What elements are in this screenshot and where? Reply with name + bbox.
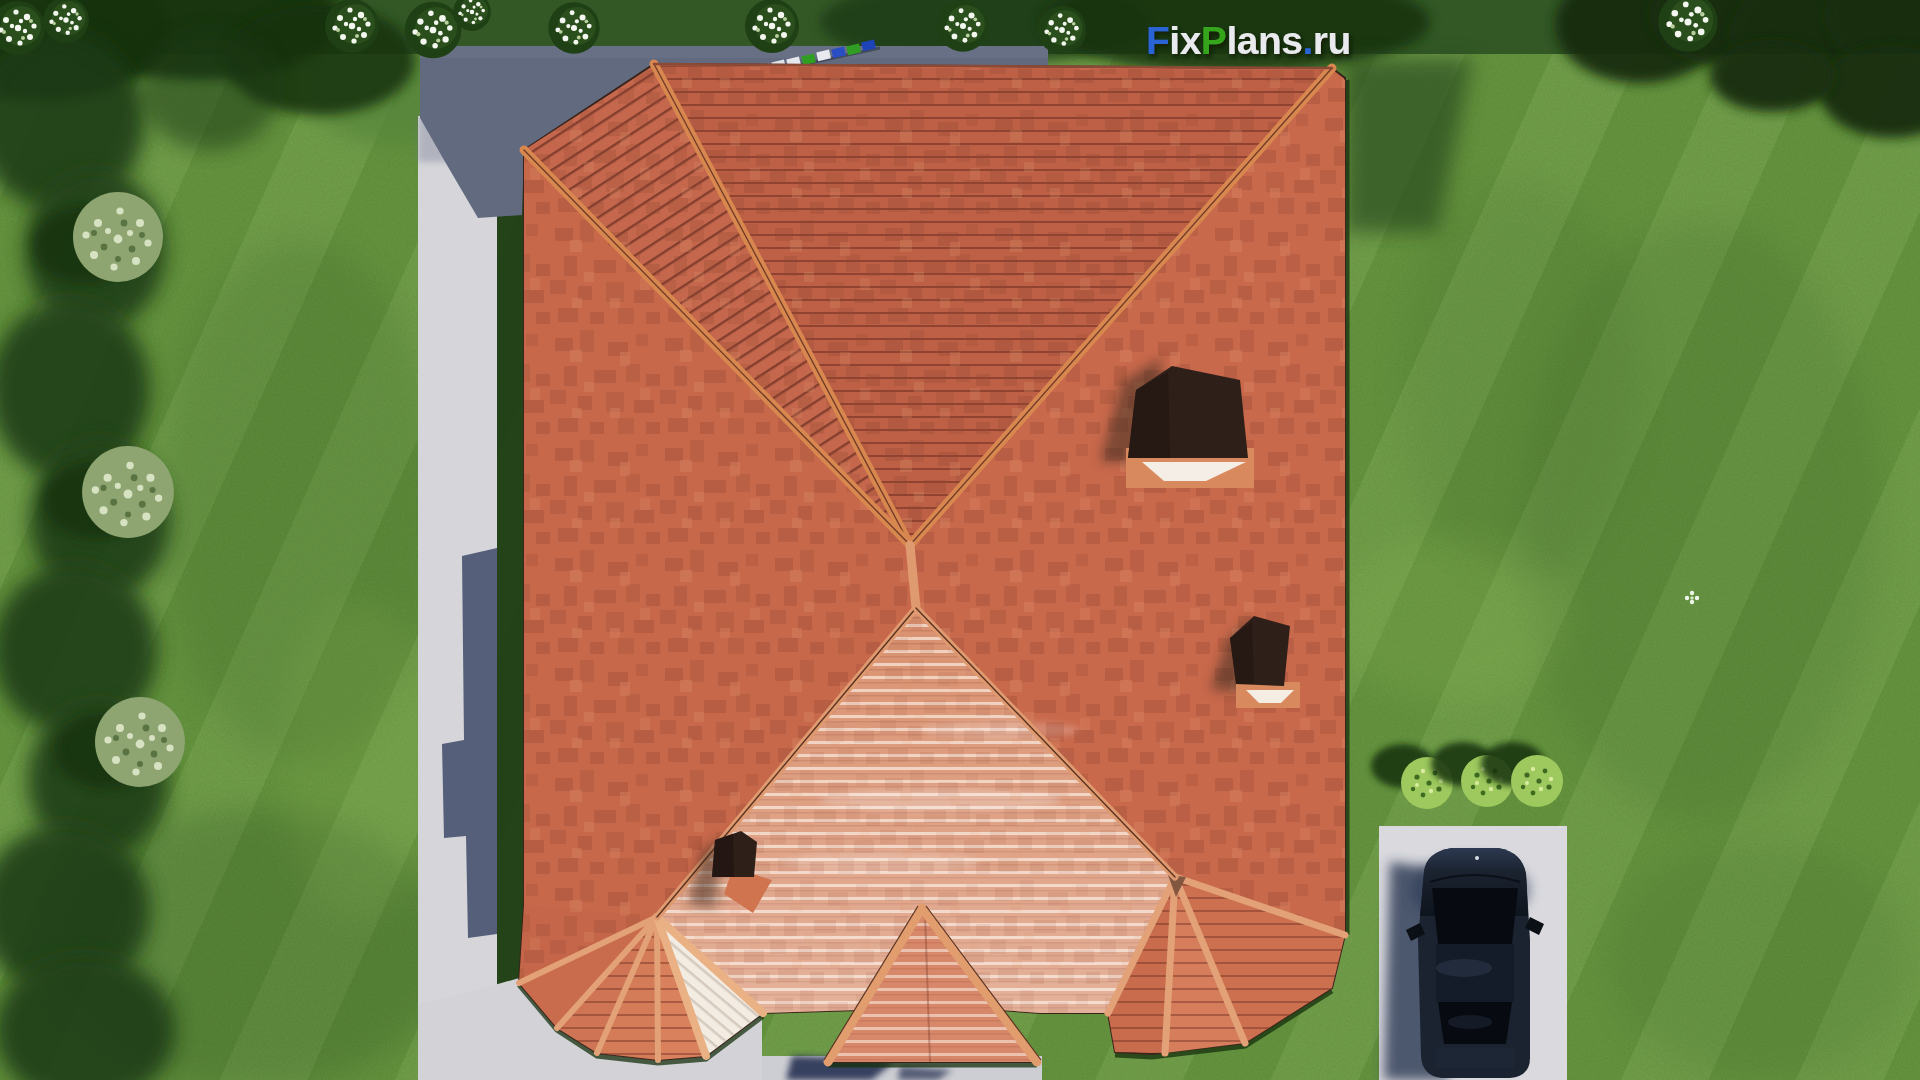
shrub — [1511, 755, 1563, 807]
center-ridge — [910, 545, 916, 608]
flower-bush — [548, 2, 599, 53]
shrub — [95, 697, 185, 787]
watermark-seg: lans — [1226, 19, 1302, 62]
watermark-seg: . — [1302, 19, 1312, 62]
flower-bush — [937, 0, 988, 51]
car — [1384, 848, 1544, 1080]
watermark-seg: ru — [1313, 19, 1351, 62]
watermark-seg: F — [1146, 19, 1169, 62]
watermark: FixPlans.ru — [1146, 19, 1351, 62]
car-windshield — [1432, 888, 1518, 944]
flower-bush — [745, 0, 799, 53]
aerial-render: FixPlans.ru — [0, 0, 1920, 1080]
watermark-seg: ix — [1169, 19, 1201, 62]
flower-bush — [1038, 6, 1087, 55]
car-antenna — [1475, 856, 1479, 860]
garden-path — [418, 116, 497, 1080]
house-roof — [519, 64, 1347, 1065]
house-shadow-strip — [495, 118, 525, 1010]
tile-mottling — [524, 66, 1345, 1013]
watermark-seg: P — [1201, 19, 1227, 62]
flower-bush — [325, 0, 379, 53]
shrub — [73, 192, 163, 282]
flower-bush — [405, 2, 462, 59]
shrub — [82, 446, 174, 538]
car-trunk — [1436, 1048, 1514, 1068]
